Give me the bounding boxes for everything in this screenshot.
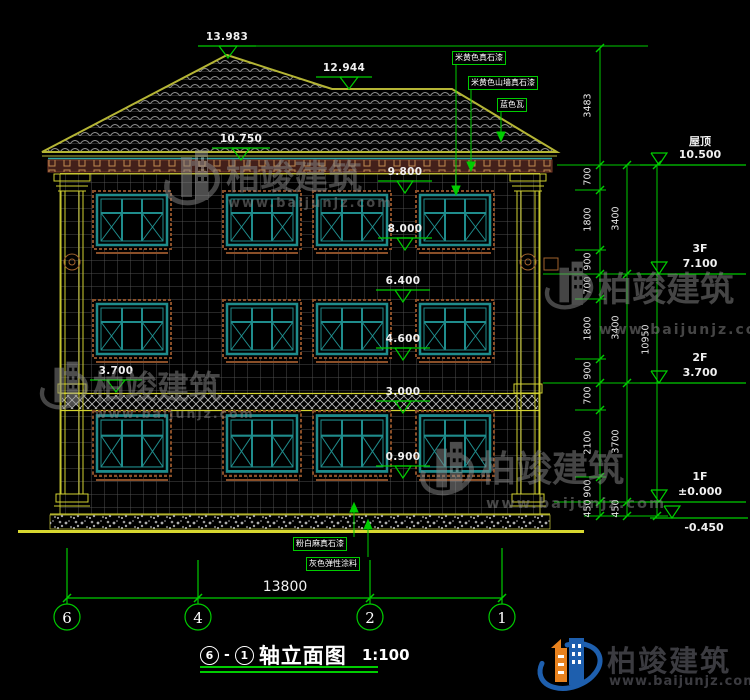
- window: [93, 411, 171, 476]
- level-value: 10.500: [658, 148, 742, 161]
- belt-course: [60, 394, 540, 411]
- dim-label: 3400: [611, 189, 624, 249]
- window: [313, 191, 391, 249]
- title-dash: -: [224, 647, 230, 663]
- level-name: 2F: [658, 351, 742, 364]
- dim-label: 3400: [611, 298, 624, 358]
- spot-elevation: 12.944: [317, 62, 371, 74]
- window: [416, 300, 494, 358]
- window: [223, 411, 301, 476]
- right-dimensions: [543, 44, 668, 520]
- spot-elevation: 4.600: [376, 333, 430, 345]
- material-note: 灰色弹性涂料: [306, 557, 360, 571]
- drawing-linework: [0, 0, 750, 700]
- spot-elevation: 6.400: [376, 275, 430, 287]
- logo-url: www.baijunjz.com: [609, 674, 750, 689]
- windows-2f: [93, 300, 494, 362]
- title-underline: [200, 666, 378, 668]
- elevation-drawing: 柏竣建筑 www.baijunjz.com 柏竣建筑 www.baijunjz.…: [0, 0, 750, 700]
- dim-label: 450: [583, 479, 596, 539]
- material-note: 蓝色瓦: [497, 98, 527, 112]
- level-value: 7.100: [658, 257, 742, 270]
- level-value: 3.700: [658, 366, 742, 379]
- spot-elevation: 13.983: [200, 31, 254, 43]
- grid-bubble: 6: [55, 609, 79, 627]
- material-note: 米黄色真石漆: [452, 51, 506, 65]
- window: [93, 300, 171, 358]
- spot-elevation: 8.000: [378, 223, 432, 235]
- grid-bubble: 1: [490, 609, 514, 627]
- dim-label: 10950: [641, 310, 654, 370]
- title-underline: [200, 671, 378, 673]
- eave-cornice: [42, 156, 557, 174]
- spot-elevation: 10.750: [214, 133, 268, 145]
- window: [313, 300, 391, 358]
- logo-icon: [534, 636, 607, 697]
- material-note: 米黄色山墙真石漆: [468, 76, 538, 90]
- level-name: 屋顶: [658, 133, 742, 149]
- level-name: 3F: [658, 242, 742, 255]
- level-value: ±0.000: [658, 485, 742, 498]
- title-scale: 1:100: [362, 646, 410, 664]
- level-markers: [640, 153, 748, 518]
- grid-bubble: 4: [186, 609, 210, 627]
- level-name: 1F: [658, 470, 742, 483]
- spot-elevation: 3.000: [376, 386, 430, 398]
- dim-label: 3483: [583, 76, 596, 136]
- grid-bubble: 2: [358, 609, 382, 627]
- windows-3f: [93, 191, 494, 253]
- roof: [42, 55, 557, 152]
- dim-label: 3700: [611, 412, 624, 472]
- material-note: 粉白麻真石漆: [293, 537, 347, 551]
- windows-1f: [93, 411, 494, 480]
- spot-elevation: 3.700: [89, 365, 143, 377]
- axis-bubble-from: 6: [200, 646, 219, 665]
- plinth: [50, 514, 550, 529]
- window: [223, 300, 301, 358]
- axis-bubble-to: 1: [235, 646, 254, 665]
- spot-elevation: 9.800: [378, 166, 432, 178]
- spot-elevation: 0.900: [376, 451, 430, 463]
- window: [223, 191, 301, 249]
- dim-label: 450: [611, 479, 624, 539]
- window: [93, 191, 171, 249]
- level-value: -0.450: [662, 521, 746, 534]
- window: [416, 191, 494, 249]
- bottom-dim-label: 13800: [250, 579, 320, 595]
